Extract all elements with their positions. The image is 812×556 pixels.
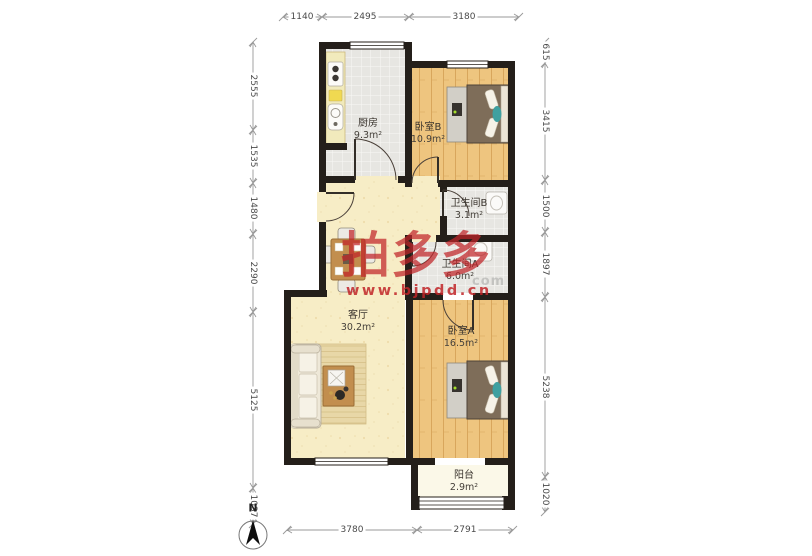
- dim-right-2: 3415: [540, 108, 550, 135]
- dim-right-4: 1897: [540, 251, 550, 278]
- dim-bottom-1: 3780: [339, 525, 366, 535]
- bedroom-a-bed-group: [447, 361, 508, 419]
- compass-north-label: N: [248, 502, 257, 515]
- stove: [328, 62, 343, 86]
- coffee-table: [323, 366, 354, 406]
- dim-right-5: 5238: [540, 374, 550, 401]
- dim-top-1: 1140: [289, 12, 316, 22]
- dim-right-1: 615: [540, 41, 550, 62]
- kitchen-window: [350, 42, 404, 49]
- dim-bottom-2: 2791: [452, 525, 479, 535]
- bedroom-b-window: [447, 61, 488, 68]
- dim-left-5: 5125: [248, 387, 258, 414]
- bathroom-vanity: [486, 192, 507, 214]
- balcony-floor: [418, 465, 508, 498]
- north-arrow-icon: [246, 520, 260, 545]
- dim-left-1: 2555: [248, 73, 258, 100]
- watermark-ghost: com: [472, 274, 505, 289]
- living-room-window: [315, 458, 388, 465]
- bedroom-b-bed-group: [447, 85, 508, 143]
- dim-left-3: 1480: [248, 195, 258, 222]
- dim-right-6: 1020: [540, 481, 550, 508]
- dim-top-3: 3180: [451, 12, 478, 22]
- balcony-window: [419, 497, 504, 509]
- entry-threshold: [317, 192, 326, 222]
- dim-right-3: 1500: [540, 193, 550, 220]
- kitchen-counter: [326, 52, 345, 144]
- sofa: [290, 344, 321, 428]
- compass: [239, 520, 267, 549]
- watermark-site-url: www.bjpdd.cn: [346, 283, 492, 299]
- dim-left-4: 2290: [248, 260, 258, 287]
- dim-top-2: 2495: [352, 12, 379, 22]
- floor-plan: 厨房 9.3m² 卧室B 10.9m² 卫生间B 3.1m² 卫生间A 6.0m…: [0, 0, 812, 556]
- watermark-brand: 拍多多: [341, 231, 491, 280]
- dim-left-2: 1535: [248, 143, 258, 170]
